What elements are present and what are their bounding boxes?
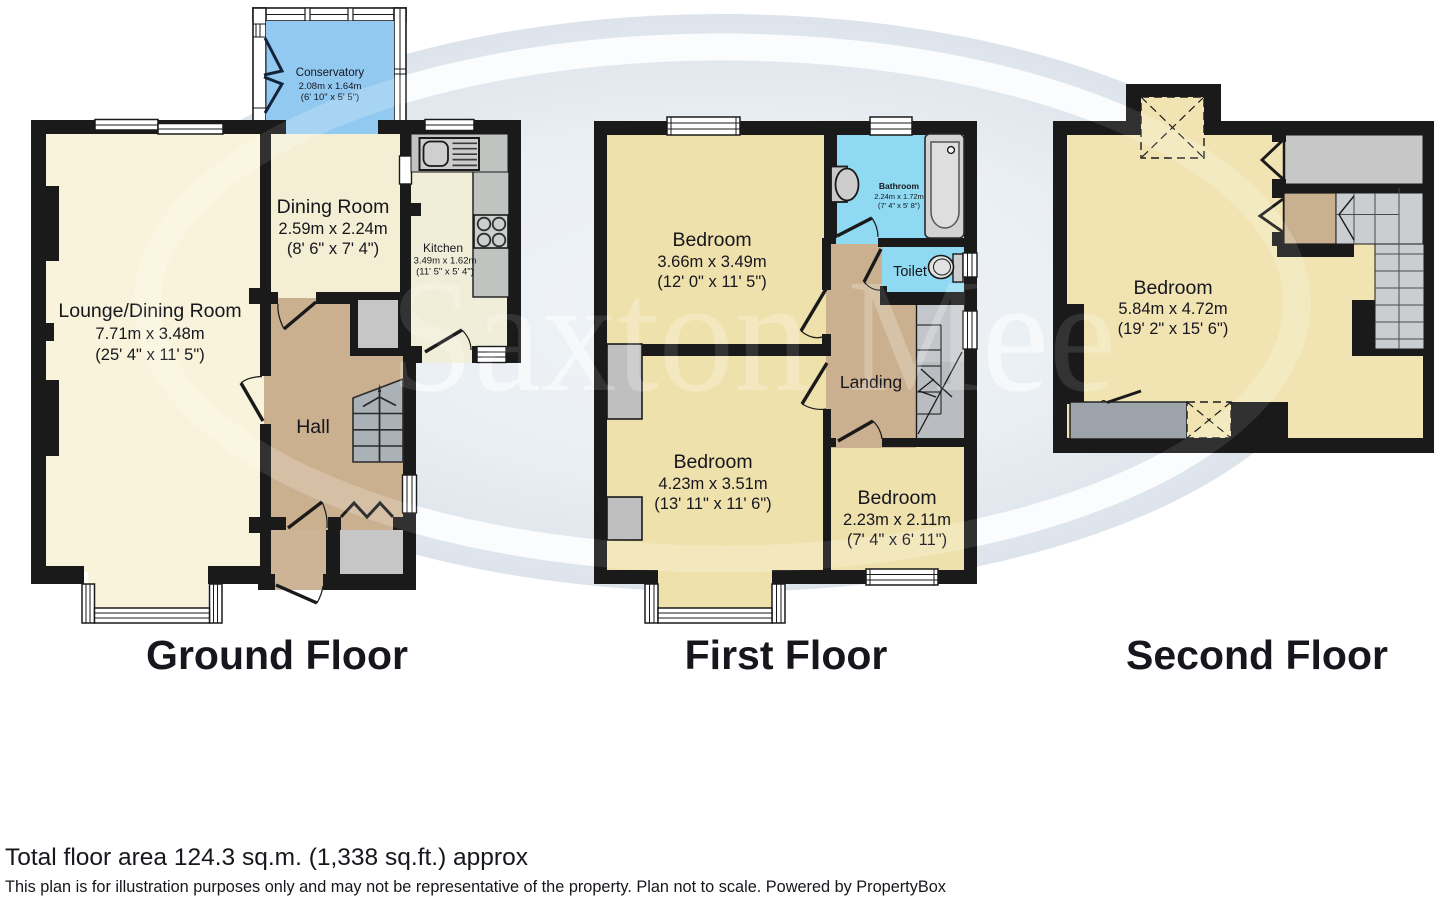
svg-text:4.23m x 3.51m: 4.23m x 3.51m: [658, 475, 767, 493]
svg-text:2.23m x 2.11m: 2.23m x 2.11m: [843, 511, 951, 529]
svg-text:Hall: Hall: [296, 416, 330, 438]
svg-text:Bedroom: Bedroom: [857, 487, 936, 509]
svg-text:Bathroom: Bathroom: [879, 181, 920, 191]
svg-text:Saxton Mee: Saxton Mee: [390, 247, 1116, 426]
svg-text:First Floor: First Floor: [685, 632, 888, 678]
svg-text:(19' 2" x 15' 6"): (19' 2" x 15' 6"): [1118, 320, 1229, 338]
svg-text:(7' 4" x 5' 8"): (7' 4" x 5' 8"): [878, 201, 920, 210]
svg-text:2.59m x 2.24m: 2.59m x 2.24m: [278, 220, 387, 238]
svg-text:Dining Room: Dining Room: [277, 196, 390, 218]
svg-text:This plan is for illustration: This plan is for illustration purposes o…: [5, 878, 946, 896]
svg-text:Ground Floor: Ground Floor: [146, 632, 408, 678]
svg-text:2.24m x 1.72m: 2.24m x 1.72m: [874, 192, 924, 201]
svg-text:Bedroom: Bedroom: [673, 451, 752, 473]
svg-text:(13' 11" x 11' 6"): (13' 11" x 11' 6"): [654, 495, 771, 513]
svg-text:Second Floor: Second Floor: [1126, 632, 1388, 678]
svg-text:Conservatory: Conservatory: [296, 67, 365, 79]
svg-text:2.08m x 1.64m: 2.08m x 1.64m: [299, 81, 362, 92]
svg-text:5.84m x 4.72m: 5.84m x 4.72m: [1118, 300, 1227, 318]
svg-text:(8' 6" x 7' 4"): (8' 6" x 7' 4"): [287, 240, 379, 258]
svg-text:Total floor area 124.3 sq.m. (: Total floor area 124.3 sq.m. (1,338 sq.f…: [5, 844, 528, 871]
svg-text:Bedroom: Bedroom: [1133, 277, 1212, 299]
